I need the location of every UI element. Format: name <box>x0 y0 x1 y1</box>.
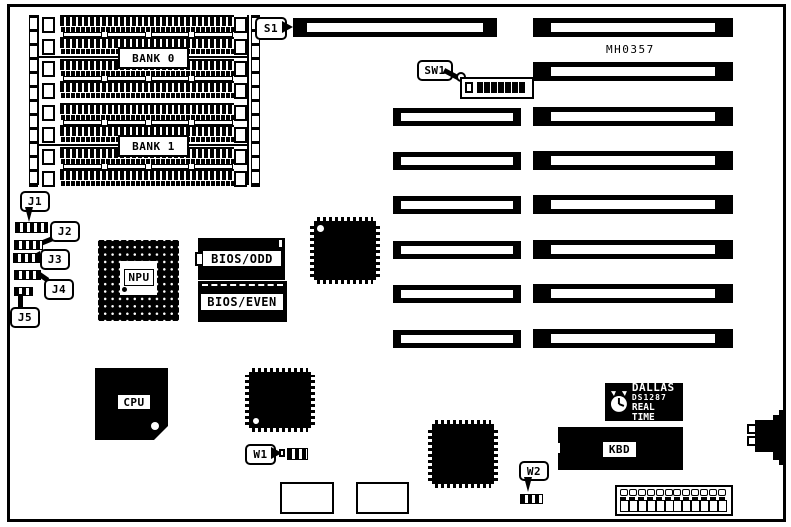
jumper-j2 <box>14 240 43 250</box>
cpu-pin1-dot <box>151 422 159 430</box>
bios-even-chip: BIOS/EVEN <box>198 281 287 322</box>
motherboard-diagram: BANK 0 BANK 1 S1 MH0357 SW1 J1 J2 J3 J4 <box>0 0 791 527</box>
dip-switch-cell <box>498 82 504 93</box>
simm-clip-right <box>234 127 247 143</box>
kbd-chip: KBD <box>558 427 683 470</box>
empty-socket-1 <box>280 482 334 514</box>
bios-even-dashed-line <box>202 284 283 286</box>
bios-odd-chip: BIOS/ODD <box>198 238 285 280</box>
din-connector-body <box>773 415 786 460</box>
power-pin <box>629 489 637 496</box>
part-number: MH0357 <box>606 43 655 56</box>
power-hole <box>638 500 647 512</box>
jumper-j1 <box>15 222 48 233</box>
qfp1-pin1-dot <box>317 225 324 232</box>
callout-s1-pointer <box>282 21 293 33</box>
dip-switch-cell <box>505 82 511 93</box>
jumper-j5 <box>14 287 33 296</box>
expansion-slot-ext <box>393 152 521 170</box>
simm-clip-right <box>234 171 247 187</box>
power-hole <box>620 500 629 512</box>
bios-odd-label: BIOS/ODD <box>203 251 281 266</box>
bank1-label: BANK 1 <box>118 135 189 157</box>
power-pin <box>673 489 681 496</box>
kbd-label: KBD <box>603 442 636 457</box>
empty-socket-2 <box>356 482 409 514</box>
clock-icon <box>608 388 630 416</box>
power-pin <box>638 489 646 496</box>
dip-switch-cell <box>477 82 483 93</box>
dip-switch-cell <box>491 82 497 93</box>
callout-j5-text: J5 <box>18 311 32 324</box>
expansion-slot-s1 <box>293 18 497 37</box>
npu-pga-socket: NPU <box>98 240 179 321</box>
callout-j4-text: J4 <box>52 283 66 296</box>
callout-j1-pointer <box>25 207 33 222</box>
power-hole <box>718 500 727 512</box>
din-pin-1 <box>747 424 757 434</box>
simm-socket-row <box>60 169 234 185</box>
expansion-slot-main <box>533 195 733 214</box>
expansion-slot-main <box>533 329 733 348</box>
power-pin <box>656 489 664 496</box>
dip-switch-cell <box>512 82 518 93</box>
power-pin <box>665 489 673 496</box>
power-hole <box>665 500 674 512</box>
jumper-w2 <box>520 494 543 504</box>
expansion-slot-main <box>533 284 733 303</box>
expansion-slot-main <box>533 18 733 37</box>
simm-socket-row <box>60 81 234 97</box>
bank1-text: BANK 1 <box>132 140 175 153</box>
power-hole <box>629 500 638 512</box>
simm-clip-right <box>234 105 247 121</box>
bios-odd-text: BIOS/ODD <box>211 252 273 266</box>
bios-even-text: BIOS/EVEN <box>207 295 277 309</box>
callout-j2-text: J2 <box>58 225 72 238</box>
bank0-text: BANK 0 <box>132 52 175 65</box>
cpu-text: CPU <box>123 396 144 409</box>
simm-clip-right <box>234 149 247 165</box>
simm-clip-left <box>42 83 55 99</box>
power-hole <box>709 500 718 512</box>
simm-clip-left <box>42 149 55 165</box>
cpu-chip: CPU <box>95 368 168 440</box>
expansion-slot-main <box>533 240 733 259</box>
jumper-w1-cap <box>279 449 285 457</box>
cpu-label: CPU <box>118 395 150 409</box>
bios-odd-notch <box>279 240 282 247</box>
power-pin <box>647 489 655 496</box>
qfp-chip-3 <box>428 420 498 488</box>
callout-j3: J3 <box>40 249 70 270</box>
callout-s1-text: S1 <box>264 22 278 35</box>
power-connector <box>615 485 733 516</box>
simm-clip-left <box>42 61 55 77</box>
rtc-brand: DALLAS <box>632 382 683 393</box>
simm-clip-right <box>234 39 247 55</box>
callout-j2: J2 <box>50 221 80 242</box>
rtc-model: DS1287 <box>632 394 683 402</box>
callout-w2-pointer <box>524 477 532 492</box>
rtc-text-block: DALLAS DS1287 REAL TIME <box>632 382 683 422</box>
npu-socket-cavity: NPU <box>120 261 157 295</box>
power-hole <box>656 500 665 512</box>
callout-j5-pointer <box>18 294 23 307</box>
power-hole <box>700 500 709 512</box>
jumper-j3 <box>13 253 40 263</box>
qfp2-pin1-dot <box>253 418 259 424</box>
expansion-slot-main <box>533 62 733 81</box>
simm-clip-left <box>42 127 55 143</box>
npu-pin1-dot <box>122 287 127 292</box>
expansion-slot-main <box>533 151 733 170</box>
simm-clip-left <box>42 171 55 187</box>
npu-label: NPU <box>124 269 154 286</box>
din-pin-2 <box>747 436 757 446</box>
simm-rail-left <box>37 15 39 185</box>
simm-clip-left <box>42 105 55 121</box>
power-pin <box>718 489 726 496</box>
power-pin <box>700 489 708 496</box>
power-hole <box>691 500 700 512</box>
power-pin <box>709 489 717 496</box>
power-hole <box>673 500 682 512</box>
dip-switch-cell <box>484 82 490 93</box>
power-pin <box>620 489 628 496</box>
dip-switch-cell <box>519 82 525 93</box>
expansion-slot-ext <box>393 196 521 214</box>
expansion-slot-main <box>533 107 733 126</box>
jumper-w1 <box>287 448 308 460</box>
kbd-notch <box>556 443 560 453</box>
simm-clip-left <box>42 39 55 55</box>
simm-edge-tabs-right <box>251 15 260 187</box>
callout-w1-text: W1 <box>253 448 267 461</box>
simm-socket-row <box>60 15 234 31</box>
simm-socket-row <box>60 103 234 119</box>
din-connector-flange <box>755 420 774 452</box>
power-pin <box>682 489 690 496</box>
simm-clip-right <box>234 61 247 77</box>
expansion-slot-ext <box>393 285 521 303</box>
rtc-type: REAL TIME <box>632 403 683 422</box>
simm-clip-right <box>234 17 247 33</box>
simm-clip-right <box>234 83 247 99</box>
bank0-label: BANK 0 <box>118 47 189 69</box>
simm-clip-left <box>42 17 55 33</box>
qfp-chip-1 <box>310 217 380 284</box>
callout-j4: J4 <box>44 279 74 300</box>
bios-even-label: BIOS/EVEN <box>201 294 283 310</box>
expansion-slot-ext <box>393 108 521 126</box>
power-pin <box>691 489 699 496</box>
simm-rail-right <box>247 15 249 185</box>
din-connector-nub-bottom <box>779 459 786 465</box>
part-number-text: MH0357 <box>606 43 655 56</box>
din-connector-nub-top <box>779 410 786 416</box>
power-hole <box>682 500 691 512</box>
npu-text: NPU <box>128 271 149 284</box>
qfp-chip-2 <box>245 368 315 432</box>
expansion-slot-ext <box>393 241 521 259</box>
callout-w2-text: W2 <box>527 465 541 478</box>
rtc-chip: DALLAS DS1287 REAL TIME <box>605 383 683 421</box>
dip-switch-sw1 <box>460 77 534 99</box>
dip-switch-cell <box>465 82 473 93</box>
callout-j3-text: J3 <box>48 253 62 266</box>
callout-j5: J5 <box>10 307 40 328</box>
expansion-slot-ext <box>393 330 521 348</box>
kbd-text: KBD <box>609 443 630 456</box>
power-hole <box>647 500 656 512</box>
